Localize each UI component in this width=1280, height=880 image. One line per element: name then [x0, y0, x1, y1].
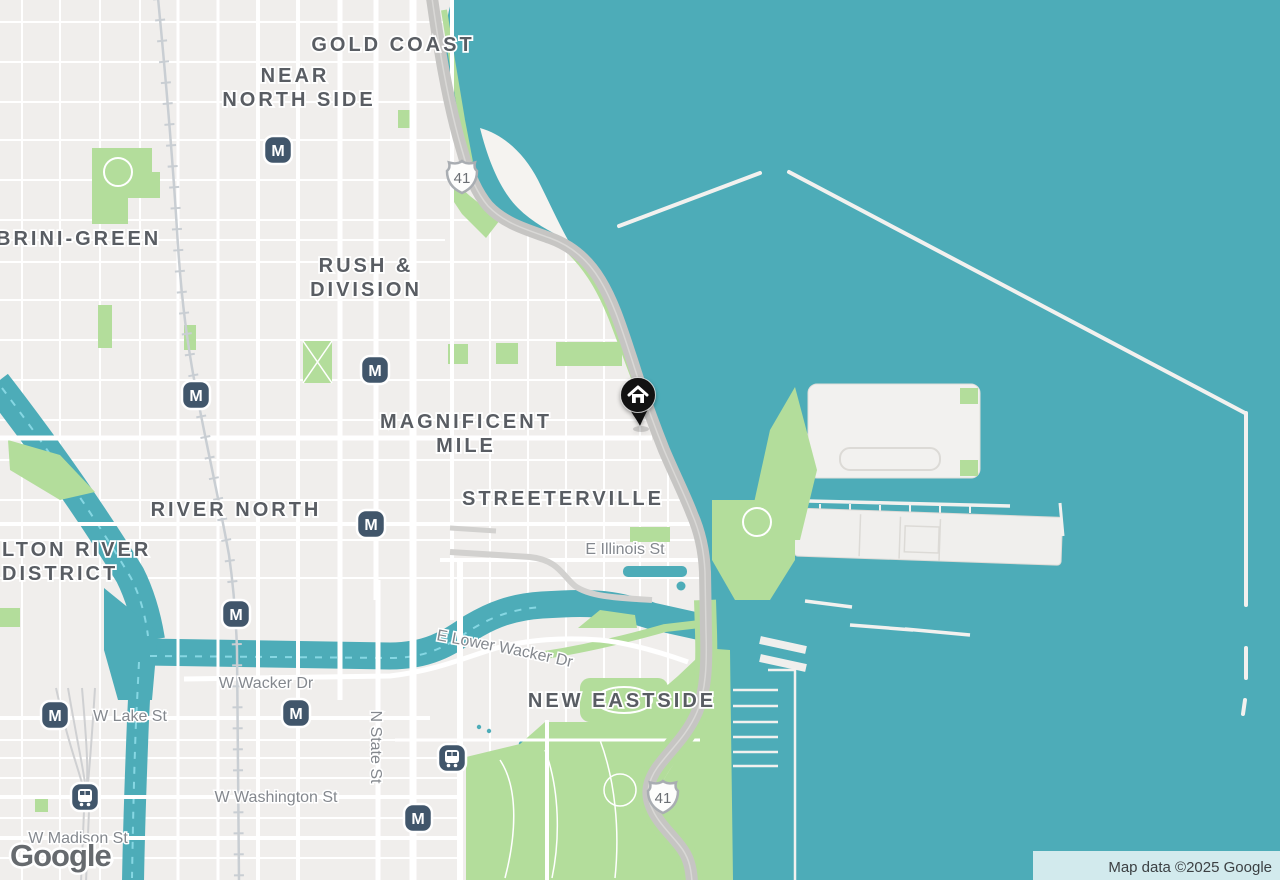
svg-text:M: M — [189, 388, 202, 405]
street-label-e-illinois: E Illinois St — [585, 541, 665, 558]
metro-station-icon[interactable]: M — [357, 510, 385, 538]
street-label-n-state: N State St — [367, 711, 384, 784]
svg-text:M: M — [271, 143, 284, 160]
marker-shadow — [633, 426, 649, 432]
map-svg[interactable]: E Illinois St E Lower Wacker Dr W Wacker… — [0, 0, 1280, 880]
neighborhood-label-rush-division-2: DIVISION — [310, 279, 422, 301]
neighborhood-label-river-north: RIVER NORTH — [151, 499, 322, 521]
neighborhood-label-near-north-1: NEAR — [261, 65, 330, 87]
street-label-w-wacker: W Wacker Dr — [219, 675, 314, 692]
svg-text:M: M — [289, 706, 302, 723]
neighborhood-label-magnificent-mile-2: MILE — [436, 435, 496, 457]
neighborhood-label-cabrini-green: BRINI-GREEN — [0, 228, 161, 250]
train-station-icon[interactable] — [71, 783, 99, 811]
neighborhood-label-new-eastside: NEW EASTSIDE — [528, 690, 716, 712]
svg-text:41: 41 — [454, 170, 471, 187]
street-label-w-washington: W Washington St — [214, 789, 338, 806]
svg-text:M: M — [411, 811, 424, 828]
metro-station-icon[interactable]: M — [264, 136, 292, 164]
attribution-text: Map data ©2025 Google — [1108, 859, 1272, 876]
metro-station-icon[interactable]: M — [182, 381, 210, 409]
metro-station-icon[interactable]: M — [222, 600, 250, 628]
metro-station-icon[interactable]: M — [361, 356, 389, 384]
neighborhood-label-streeterville: STREETERVILLE — [462, 488, 664, 510]
metro-station-icon[interactable]: M — [404, 804, 432, 832]
svg-text:M: M — [364, 517, 377, 534]
neighborhood-label-fulton-river-2: DISTRICT — [2, 563, 118, 585]
svg-text:41: 41 — [655, 790, 672, 807]
neighborhood-label-magnificent-mile-1: MAGNIFICENT — [380, 411, 552, 433]
metro-station-icon[interactable]: M — [282, 699, 310, 727]
svg-text:M: M — [229, 607, 242, 624]
metro-station-icon[interactable]: M — [41, 701, 69, 729]
map-canvas[interactable]: E Illinois St E Lower Wacker Dr W Wacker… — [0, 0, 1280, 880]
train-station-icon[interactable] — [438, 744, 466, 772]
svg-text:M: M — [48, 708, 61, 725]
neighborhood-label-near-north-2: NORTH SIDE — [222, 89, 375, 111]
svg-text:M: M — [368, 363, 381, 380]
neighborhood-label-rush-division-1: RUSH & — [319, 255, 414, 277]
google-logo[interactable]: Google — [10, 838, 112, 873]
neighborhood-label-gold-coast: GOLD COAST — [311, 34, 474, 56]
neighborhood-label-fulton-river-1: LTON RIVER — [2, 539, 151, 561]
street-label-w-lake: W Lake St — [93, 708, 167, 725]
